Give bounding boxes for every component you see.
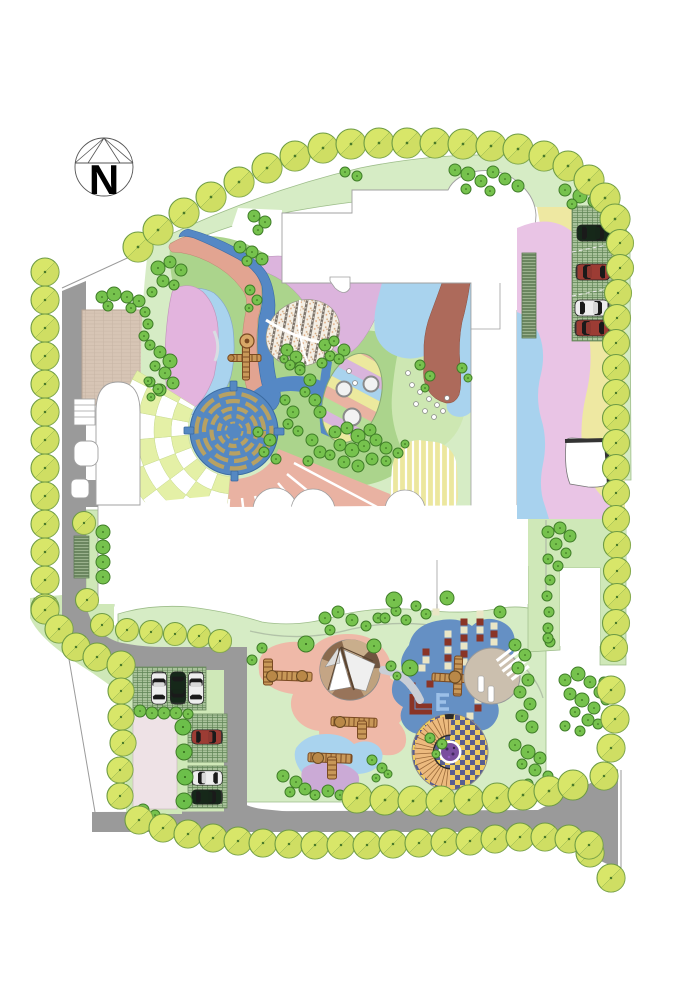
svg-text:N: N: [89, 156, 119, 203]
